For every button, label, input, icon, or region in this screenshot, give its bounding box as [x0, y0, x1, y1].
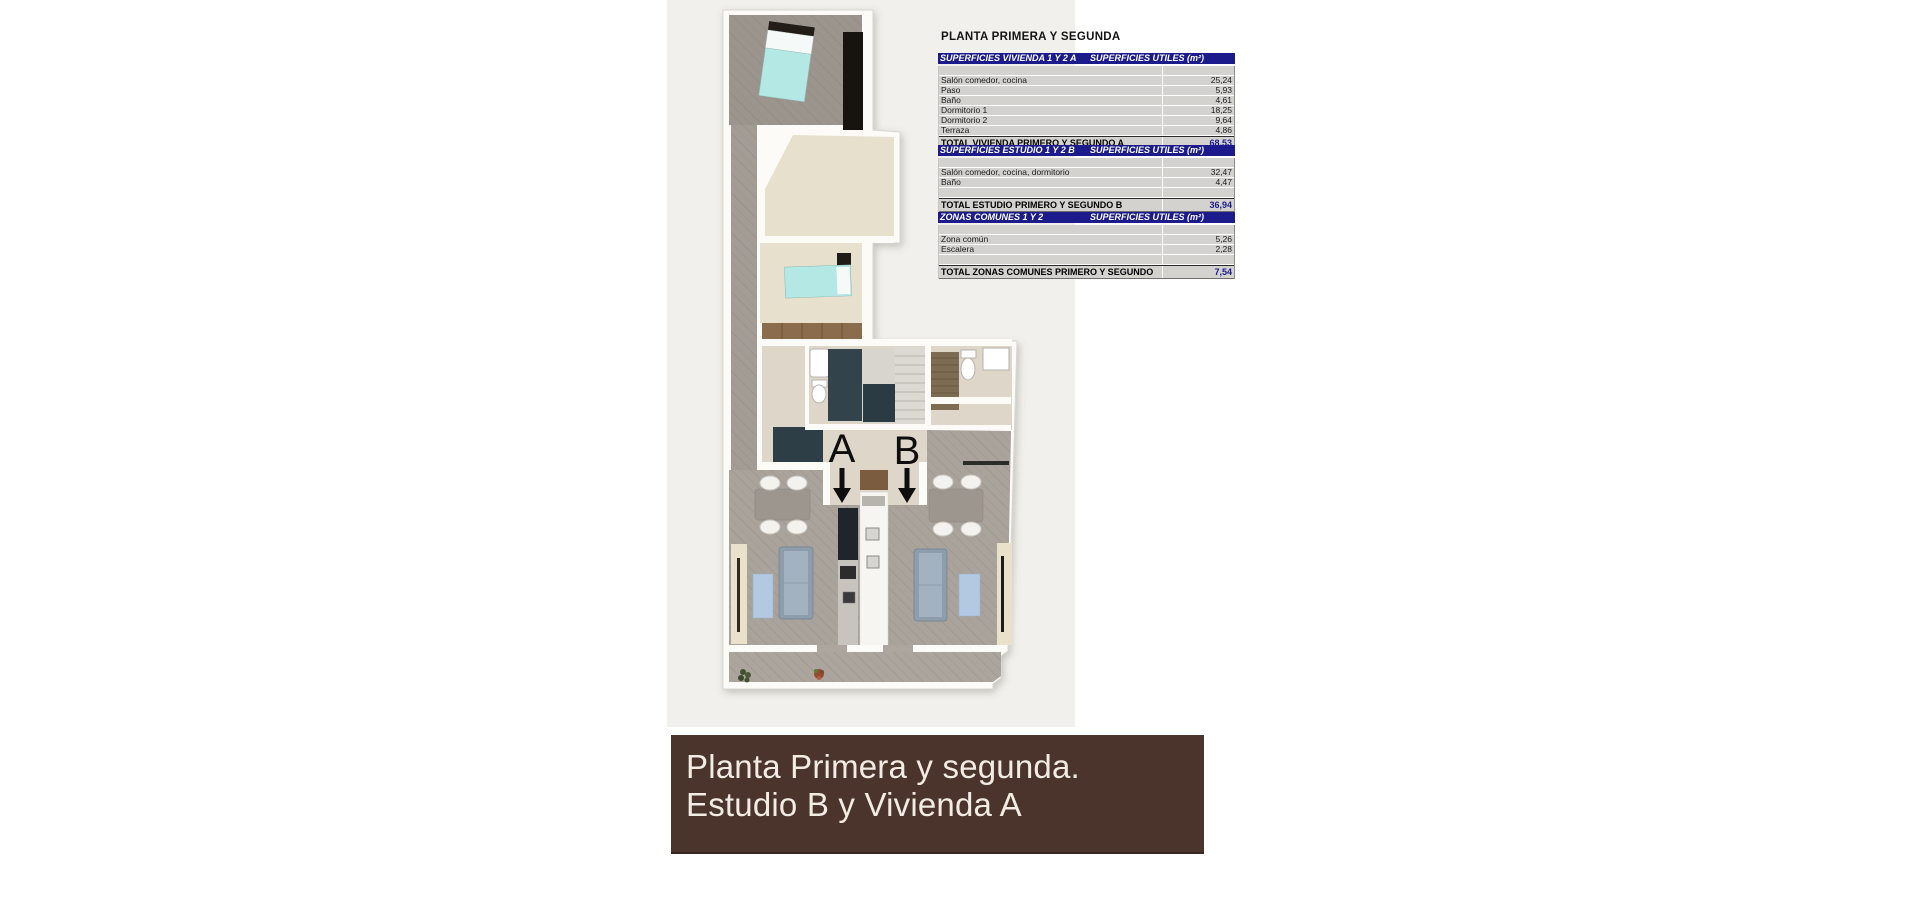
page-title: PLANTA PRIMERA Y SEGUNDA	[941, 31, 1121, 43]
row-value: 5,93	[1163, 86, 1234, 95]
rug-a	[753, 574, 773, 618]
table-total-row: TOTAL ZONAS COMUNES PRIMERO Y SEGUNDO7,5…	[939, 265, 1234, 279]
chair-b4	[961, 522, 981, 536]
row-label: Escalera	[939, 245, 1163, 254]
row-value: 4,86	[1163, 126, 1234, 135]
balcony-wall	[729, 645, 1001, 652]
row-value	[1163, 158, 1234, 167]
wardrobe	[843, 32, 863, 130]
kitchen-dishwasher	[843, 592, 855, 603]
table-header: SUPERFICIES ESTUDIO 1 Y 2 BSUPERFICIES U…	[938, 145, 1235, 156]
row-label: Salón comedor, cocina	[939, 76, 1163, 85]
table-header: SUPERFICIES VIVIENDA 1 Y 2 ASUPERFICIES …	[938, 53, 1235, 64]
row-label: Salón comedor, cocina, dormitorio	[939, 168, 1163, 177]
balcony-door-gap-a	[817, 645, 847, 652]
kitchen-sink	[866, 528, 879, 540]
chair-a3	[760, 520, 780, 534]
row-label: Terraza	[939, 126, 1163, 135]
terraza-strip-pattern	[731, 125, 757, 470]
table-header-left: SUPERFICIES ESTUDIO 1 Y 2 B	[940, 145, 1075, 156]
row-value: 9,64	[1163, 116, 1234, 125]
table-row: Terraza4,86	[939, 126, 1234, 136]
surfaces-table: ZONAS COMUNES 1 Y 2SUPERFICIES UTILES (m…	[938, 212, 1235, 279]
table-row: Dormitorio 29,64	[939, 116, 1234, 126]
chair-a4	[787, 520, 807, 534]
row-label: Dormitorio 2	[939, 116, 1163, 125]
table-header-left: ZONAS COMUNES 1 Y 2	[940, 212, 1043, 223]
row-value	[1163, 225, 1234, 234]
table-row: Zona común5,26	[939, 235, 1234, 245]
curtain-rod-b	[963, 461, 1009, 465]
row-label	[939, 225, 1163, 234]
table-body: Salón comedor, cocina25,24Paso5,93Baño4,…	[938, 66, 1235, 150]
chair-a1	[760, 476, 780, 490]
table-header-right: SUPERFICIES UTILES (m²)	[1090, 53, 1204, 64]
table-header-right: SUPERFICIES UTILES (m²)	[1090, 145, 1204, 156]
entry-wood-closet	[860, 470, 888, 490]
table-header-right: SUPERFICIES UTILES (m²)	[1090, 212, 1204, 223]
unit-a-label: A	[829, 427, 856, 471]
bath-stub-wall	[925, 397, 1011, 404]
total-value: 7,54	[1163, 266, 1234, 278]
caption-line-1: Planta Primera y segunda.	[686, 748, 1204, 786]
hall-apartment-wall-left	[762, 462, 823, 470]
total-label: TOTAL ZONAS COMUNES PRIMERO Y SEGUNDO	[939, 266, 1163, 278]
dining-table-a	[755, 489, 810, 520]
table-total-row: TOTAL ESTUDIO PRIMERO Y SEGUNDO B36,94	[939, 198, 1234, 212]
wall-under-paso	[762, 236, 894, 243]
bed-single	[784, 265, 851, 298]
row-label: Dormitorio 1	[939, 106, 1163, 115]
row-value: 18,25	[1163, 106, 1234, 115]
toilet-right-tank	[961, 350, 976, 358]
table-blank-row	[939, 255, 1234, 265]
dining-table-b	[929, 489, 983, 522]
sideboard-a-tv	[737, 558, 740, 632]
row-value: 5,26	[1163, 235, 1234, 244]
bath-divider-wall	[925, 339, 931, 426]
table-body: Salón comedor, cocina, dormitorio32,47Ba…	[938, 158, 1235, 212]
wood-wardrobe-strip	[762, 323, 862, 339]
stair-steps	[895, 347, 925, 425]
row-label	[939, 255, 1163, 264]
total-value: 36,94	[1163, 199, 1234, 211]
kitchen-counter-dark	[838, 508, 858, 560]
row-value: 25,24	[1163, 76, 1234, 85]
tv-cabinet-b	[997, 543, 1012, 645]
row-value: 32,47	[1163, 168, 1234, 177]
caption-banner: Planta Primera y segunda. Estudio B y Vi…	[671, 735, 1204, 854]
table-row: Salón comedor, cocina25,24	[939, 76, 1234, 86]
toilet-left-bowl	[812, 385, 826, 403]
chair-b1	[933, 475, 953, 489]
balcony-pattern	[729, 652, 1001, 682]
balcony-door-gap-b	[883, 645, 913, 652]
row-label	[939, 66, 1163, 75]
row-label: Baño	[939, 96, 1163, 105]
chair-b2	[961, 475, 981, 489]
table-row: Paso5,93	[939, 86, 1234, 96]
stairwell-void	[828, 349, 862, 421]
row-label: Baño	[939, 178, 1163, 187]
kitchen-island	[860, 492, 888, 653]
table-row: Escalera2,28	[939, 245, 1234, 255]
table-blank-row	[939, 225, 1234, 235]
row-value	[1163, 66, 1234, 75]
row-label: Paso	[939, 86, 1163, 95]
kitchen-appliance-small	[867, 556, 879, 568]
row-value: 2,28	[1163, 245, 1234, 254]
table-row: Baño4,47	[939, 178, 1234, 188]
table-blank-row	[939, 158, 1234, 168]
caption-line-2: Estudio B y Vivienda A	[686, 786, 1204, 824]
row-label: Zona común	[939, 235, 1163, 244]
surfaces-table: SUPERFICIES ESTUDIO 1 Y 2 BSUPERFICIES U…	[938, 145, 1235, 212]
unit-b-label: B	[894, 429, 921, 473]
bed2-nightstand	[837, 253, 851, 265]
table-row: Dormitorio 118,25	[939, 106, 1234, 116]
table-blank-row	[939, 188, 1234, 198]
row-label	[939, 158, 1163, 167]
stair-left-wall	[805, 346, 809, 430]
row-value	[1163, 188, 1234, 197]
row-value: 4,61	[1163, 96, 1234, 105]
wall-under-bedroom2	[762, 339, 1012, 346]
chair-a2	[787, 476, 807, 490]
table-row: Salón comedor, cocina, dormitorio32,47	[939, 168, 1234, 178]
bath-bottom-wall	[927, 425, 1011, 431]
table-header: ZONAS COMUNES 1 Y 2SUPERFICIES UTILES (m…	[938, 212, 1235, 223]
rug-b	[959, 574, 980, 616]
row-value	[1163, 255, 1234, 264]
table-header-left: SUPERFICIES VIVIENDA 1 Y 2 A	[940, 53, 1077, 64]
washbasin-right	[983, 348, 1009, 370]
washbasin-left	[810, 349, 829, 377]
table-blank-row	[939, 66, 1234, 76]
stair-mid-dark	[863, 384, 895, 422]
tv-b	[1001, 556, 1004, 632]
toilet-right-bowl	[961, 358, 975, 380]
table-row: Baño4,61	[939, 96, 1234, 106]
kitchen-stove	[862, 496, 885, 506]
total-label: TOTAL ESTUDIO PRIMERO Y SEGUNDO B	[939, 199, 1163, 211]
chair-b3	[933, 522, 953, 536]
table-body: Zona común5,26Escalera2,28TOTAL ZONAS CO…	[938, 225, 1235, 279]
kitchen-oven	[840, 566, 856, 579]
row-value: 4,47	[1163, 178, 1234, 187]
surfaces-table: SUPERFICIES VIVIENDA 1 Y 2 ASUPERFICIES …	[938, 53, 1235, 150]
row-label	[939, 188, 1163, 197]
